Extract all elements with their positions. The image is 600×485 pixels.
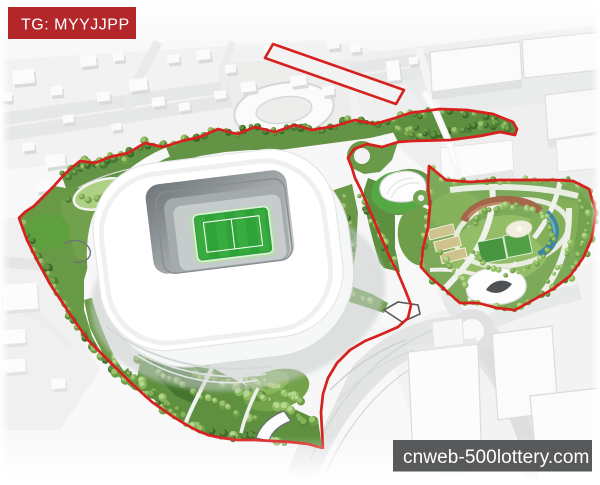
svg-text:TG: MYYJJPP: TG: MYYJJPP bbox=[21, 17, 130, 34]
svg-text:cnweb-500lottery.com: cnweb-500lottery.com bbox=[403, 447, 589, 468]
